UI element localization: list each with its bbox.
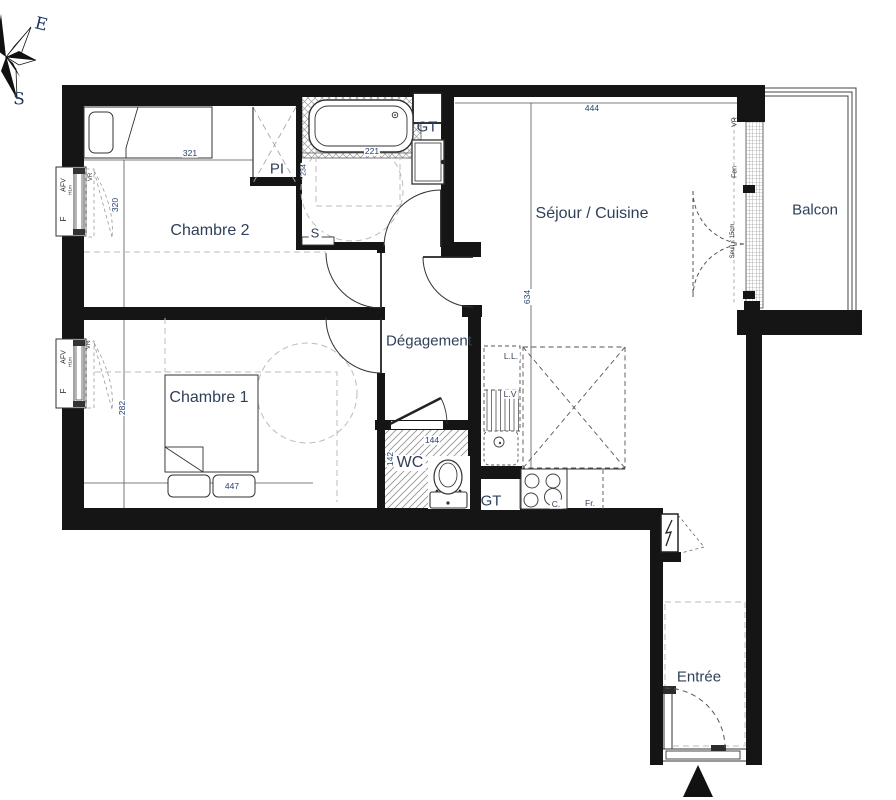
- door-bath: [384, 190, 441, 247]
- entry-arrow-icon: [683, 765, 713, 797]
- cooktop-label: C.: [550, 500, 563, 509]
- floorplan-drawing: [0, 0, 896, 800]
- room-label-chambre2: Chambre 2: [170, 223, 249, 239]
- window-label-seuil-balcony: Seuil < 15cm: [730, 224, 736, 259]
- hatched-zones: [302, 95, 763, 508]
- closet-label: PI: [270, 162, 284, 177]
- balcony-window-glazing: [746, 117, 763, 308]
- dim-sejour-height: 634: [523, 289, 532, 305]
- window-label-fen-balcony: Fen: [732, 166, 739, 178]
- entry-door: [663, 686, 746, 761]
- fridge-label: Fr.: [585, 499, 595, 508]
- washbasin: [412, 140, 445, 184]
- toilet: [428, 456, 470, 509]
- doors: [326, 190, 746, 424]
- window-label-afv-chambre2: AFV: [61, 178, 68, 192]
- floorplan-page: E S Chambre 2 Chambre 1 Séjour / Cuisine…: [0, 0, 896, 800]
- door-chambre1: [326, 318, 381, 373]
- dim-chambre2-width: 321: [182, 149, 198, 158]
- door-chambre2: [326, 253, 381, 308]
- room-label-degagement: Dégagement: [386, 334, 472, 349]
- window-label-afv-chambre1: AFV: [61, 350, 68, 364]
- compass-rose: [0, 14, 36, 99]
- bathtub: [309, 100, 413, 152]
- turning-circle-chambre1: [257, 343, 357, 443]
- washing-machine-label: L.L.: [502, 352, 520, 361]
- room-label-balcon: Balcon: [792, 203, 838, 218]
- dim-chambre1-height: 282: [118, 400, 127, 416]
- dim-sejour-width: 444: [584, 104, 600, 113]
- window-swings: [86, 117, 734, 409]
- room-label-wc: WC: [395, 455, 426, 471]
- room-label-chambre1: Chambre 1: [169, 390, 248, 406]
- window-label-f-chambre1: F: [60, 389, 68, 394]
- room-label-entree: Entrée: [677, 670, 721, 685]
- balcony-railing: [765, 88, 856, 310]
- kitchen-sink: [484, 431, 518, 465]
- dishwasher-label: L.V: [502, 390, 519, 399]
- duct-label-kitchen: GT: [481, 494, 502, 509]
- door-degagement-sejour: [423, 257, 473, 307]
- window-label-h1m-chambre2: H1m: [69, 185, 74, 195]
- dim-wc-width: 144: [424, 436, 440, 445]
- french-door-swing: [693, 191, 746, 297]
- window-label-vr-chambre1: VR: [86, 341, 92, 349]
- bath-sink-label: S: [309, 227, 322, 240]
- duct-label-bath: GT: [417, 120, 438, 135]
- window-label-vr-chambre2: VR: [88, 173, 94, 181]
- dim-bath-height: 234: [301, 163, 308, 177]
- window-label-vr-balcony: VR: [732, 117, 739, 127]
- compass-south-label: S: [13, 92, 25, 109]
- kitchen-table-zone: [523, 347, 625, 468]
- dim-chambre2-height: 320: [111, 197, 120, 213]
- dim-bath-width: 221: [364, 147, 380, 156]
- dim-chambre1-width: 447: [224, 482, 240, 491]
- dim-wc-height: 142: [386, 451, 395, 467]
- room-label-sejour-cuisine: Séjour / Cuisine: [536, 206, 649, 222]
- window-label-f-chambre2: F: [60, 217, 68, 222]
- window-label-h1m-chambre1: H1m: [69, 357, 74, 367]
- electrical-panel: [661, 514, 704, 553]
